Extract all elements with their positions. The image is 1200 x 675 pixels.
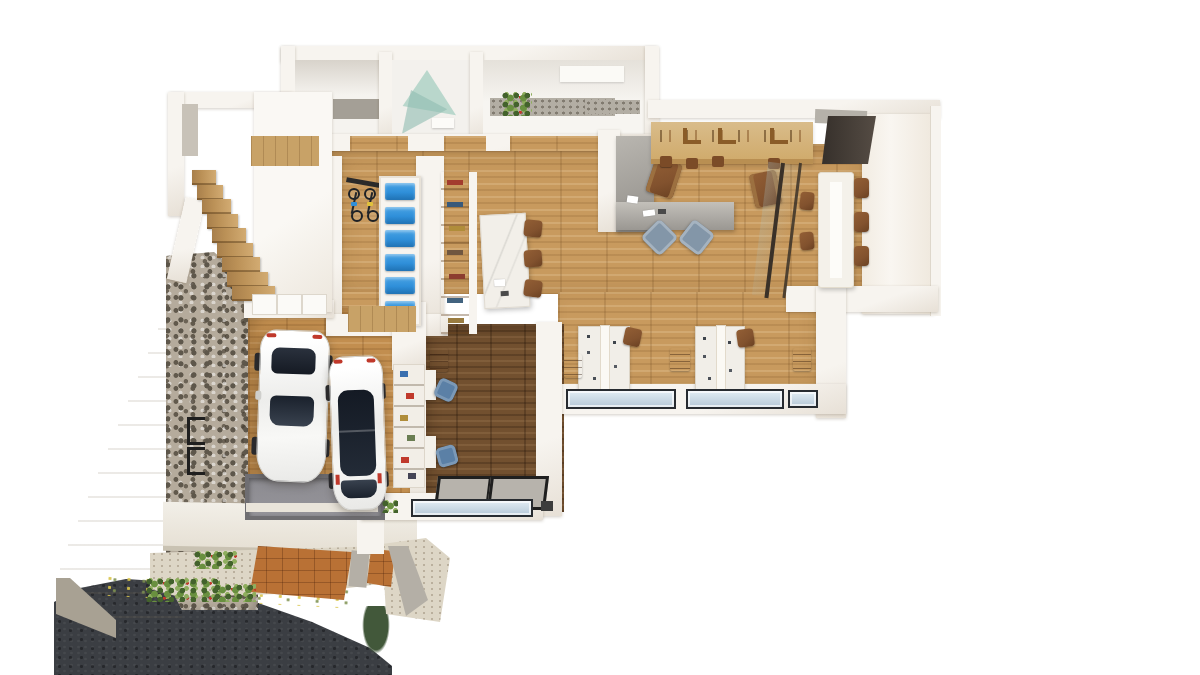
bicycle-accent [367,202,373,206]
washroom-bench [585,100,640,114]
car-sedan-mirrors [255,391,261,400]
dark-glass-canopy [822,116,876,164]
garage-appliance-2 [277,294,302,315]
wall-bracket-upper [187,417,205,445]
dining-chair-3 [523,279,543,298]
locker-bin [385,230,415,247]
pod1-cabinet-left [564,354,582,378]
locker-bin [385,183,415,200]
doorway-floor-1 [350,136,408,151]
stair-step [202,199,231,214]
gym-door-lintel [251,136,319,166]
car-hatchback-front-trim [335,475,339,485]
pod1-partition [600,325,610,393]
stair-step [217,243,253,258]
bookshelf-side-lip [469,172,477,334]
doorway-floor-2 [444,136,486,151]
dining-chair-2 [523,249,542,267]
locker-bin [385,277,415,294]
car-sedan-taillights [266,333,276,337]
kitchen-book-stack-2 [686,158,698,169]
kitchen-book-stack-1 [660,156,672,167]
stair-step [222,257,260,272]
stair-step [192,170,216,185]
wall-meetingroom-bottom [786,286,938,312]
bookshelf-books [447,180,463,185]
meeting-table-runner [830,182,842,278]
wall-right-outer-lip [930,106,941,316]
entry-plant [382,500,398,513]
stair-step [207,214,238,229]
washroom-vanity [560,66,624,82]
meeting-chair-left-1 [799,191,815,210]
shower-fixture [432,118,454,128]
pod1-cabinet [670,348,690,371]
car-hatchback [328,355,385,509]
pod2-partition [716,325,726,393]
kitchen-bracket-2 [718,128,736,144]
doorway-floor-3 [510,136,602,151]
planting-strip-lower [146,578,220,602]
kitchen-cabinet-wall [651,122,813,164]
stair-step [197,185,223,200]
car-hatchback-windshield [341,479,378,498]
kitchen-bracket-3 [770,128,788,144]
fence-stub [357,514,384,554]
kitchen-bracket-1 [683,128,701,144]
garage-counter [348,306,416,332]
meeting-chair-right-2 [854,212,869,232]
car-hatchback-panoramic-roof [338,389,377,476]
reception-laptop [658,209,666,214]
den-wall-cabinet [430,348,448,372]
workstation-pod-1 [578,326,630,390]
reception-counter-horizontal [616,202,734,230]
car-sedan-windshield [269,395,314,427]
reception-paper-1 [627,195,639,203]
staircase [192,170,304,308]
stairwell-inner-face [182,104,198,156]
window-south-3 [788,390,818,408]
washroom-plant [502,92,532,116]
table-tray [494,279,505,287]
window-entry [411,499,533,517]
pod2-cabinet [793,348,811,371]
pod2-task-chair [736,328,755,348]
kitchen-counter-lip [651,159,813,164]
wall-bracket-lower [187,447,205,475]
stair-step [227,272,268,287]
entry-vent [541,501,553,511]
bicycle-accent [351,202,357,206]
marble-table [480,213,531,309]
car-sedan-rear-glass [271,347,316,375]
dining-chair-1 [523,219,543,238]
meeting-table [818,172,854,288]
car-hatchback-taillights [333,359,342,363]
table-tablet [501,291,509,296]
kitchen-book-stack-3 [712,156,724,167]
planting-clump [214,584,256,602]
meeting-chair-right-1 [854,178,869,198]
car-sedan [255,329,328,481]
pod2-desk-items [703,337,706,340]
deck-curb [348,550,369,587]
garage-shelving [393,364,425,488]
planting-strip-upper [194,551,238,569]
meeting-chair-right-3 [854,246,869,266]
stair-step [212,228,246,243]
garage-appliance-3 [302,294,327,315]
storage-back-counter [333,99,379,119]
locker-bin [385,207,415,224]
moss-patch [362,606,390,654]
locker-unit [379,176,421,326]
window-south-1 [566,389,676,409]
wall-shower-washroom [470,52,483,144]
meeting-chair-left-2 [799,231,815,250]
garage-appliance-1 [252,294,277,315]
floor-plan-render [0,0,1200,675]
pod1-desk-items [587,335,590,338]
wall-right-outer-block [862,114,934,314]
entry-deck [250,546,352,600]
window-south-2 [686,389,784,409]
bookshelf [441,172,470,334]
shelving-items [400,371,408,377]
wall-storage-shower [379,52,392,144]
locker-bin [385,254,415,271]
